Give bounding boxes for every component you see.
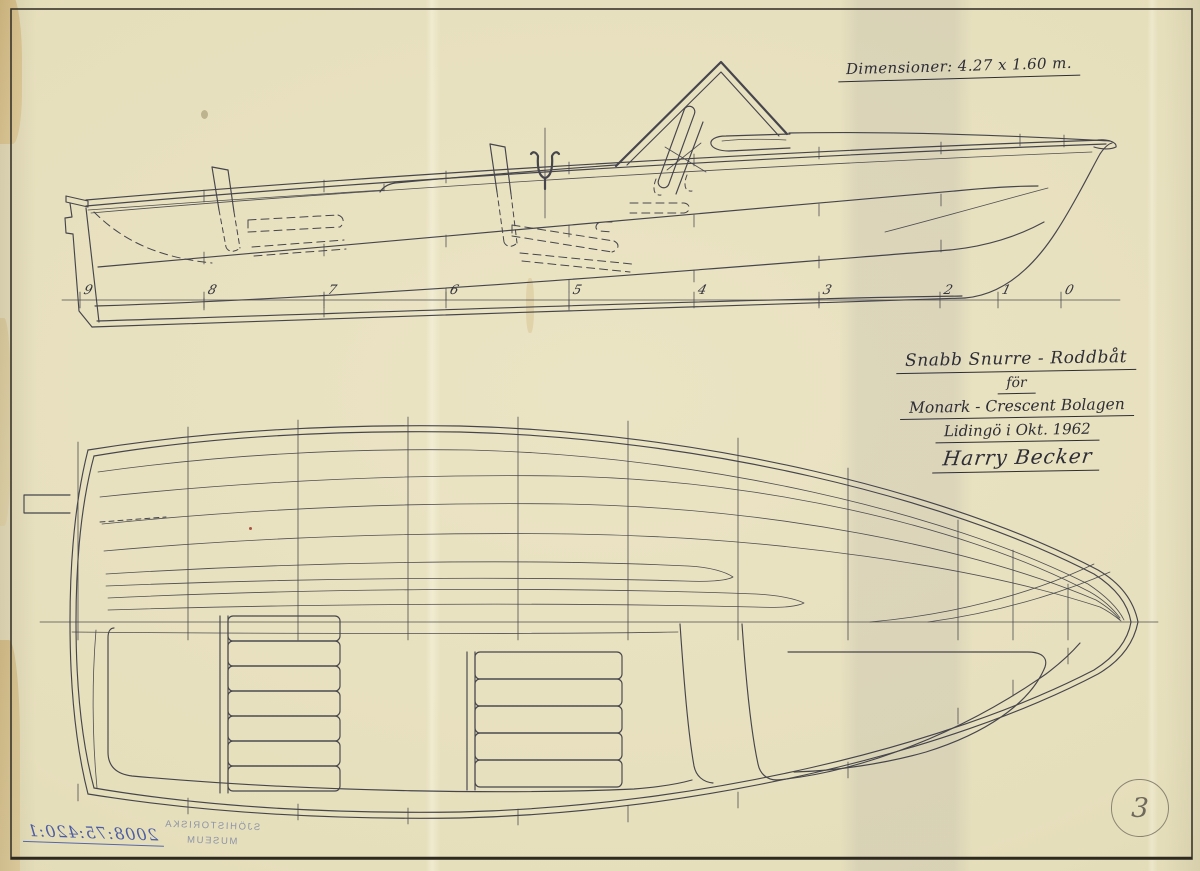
side-profile-view (62, 62, 1120, 327)
museum-stamp-text: SJÖHISTORISKA MUSEUM (163, 818, 261, 851)
steering-wheel (654, 105, 706, 195)
rowlock-post-aft (212, 167, 240, 251)
designer-signature: Harry Becker (932, 444, 1103, 474)
title-block: Snabb Snurre - Roddbåt för Monark - Cres… (891, 347, 1143, 477)
client-name: Monark - Crescent Bolagen (900, 395, 1134, 420)
transom (65, 196, 212, 327)
hull-profile-lines (92, 143, 1112, 327)
stern-seat-slats (220, 616, 340, 793)
plan-waterlines (100, 476, 1121, 622)
title-for: för (997, 375, 1036, 395)
drawing-sheet: 9876543210 Dimensioner: 4.27 x 1.60 m. S… (0, 0, 1200, 871)
drawing-title: Snabb Snurre - Roddbåt (896, 347, 1137, 374)
plan-view (24, 417, 1158, 825)
thwart-seats-dashed (248, 203, 689, 272)
place-date: Lidingö i Okt. 1962 (935, 420, 1100, 444)
windshield (616, 62, 787, 166)
plan-station-lines (78, 417, 1068, 825)
floorboard-slats (467, 652, 622, 790)
page-number: 3 (1131, 792, 1150, 824)
